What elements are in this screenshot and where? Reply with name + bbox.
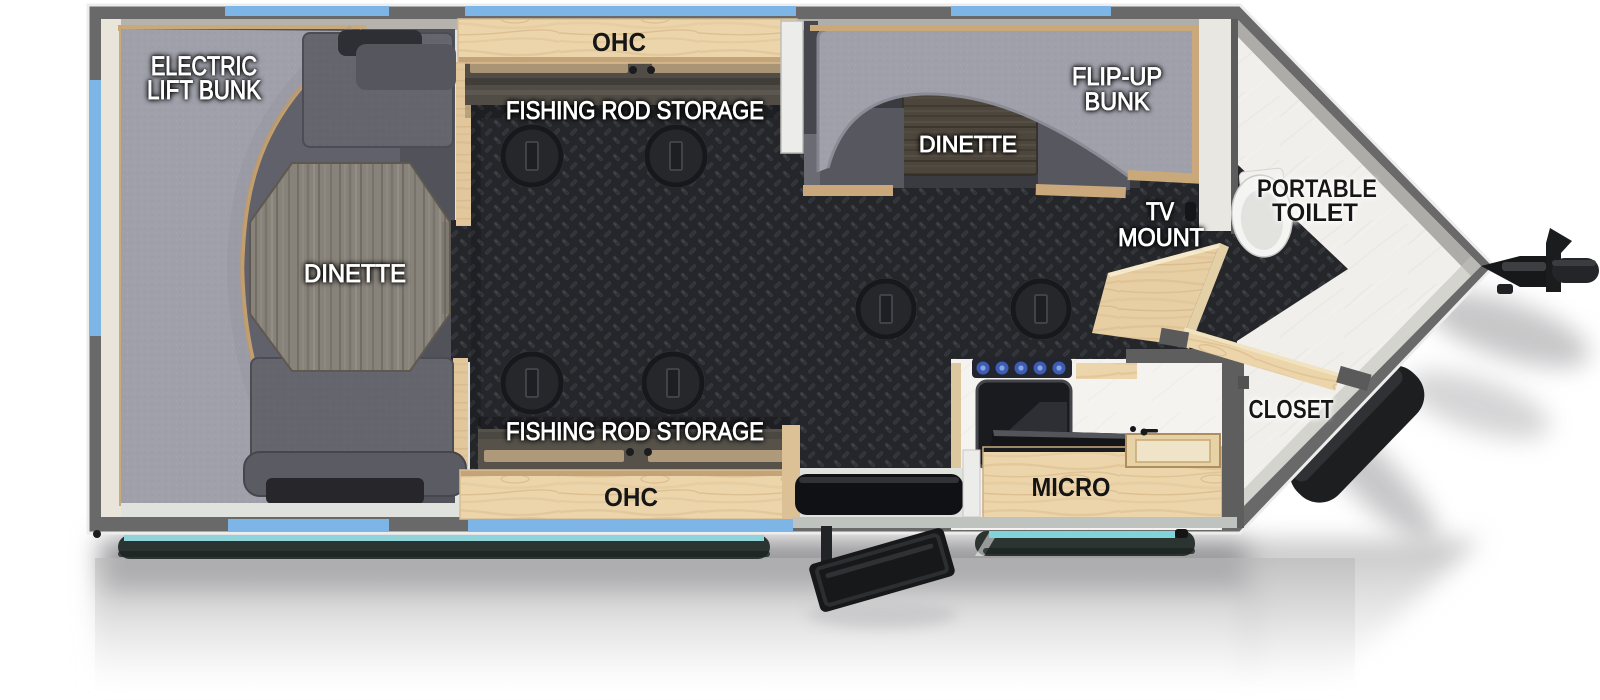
svg-text:FISHING ROD STORAGE: FISHING ROD STORAGE: [506, 418, 764, 446]
svg-text:LIFT BUNK: LIFT BUNK: [147, 75, 261, 105]
svg-text:DINETTE: DINETTE: [304, 260, 406, 288]
svg-text:BUNK: BUNK: [1085, 88, 1150, 116]
svg-text:FLIP-UP: FLIP-UP: [1072, 63, 1162, 91]
svg-text:DINETTE: DINETTE: [919, 131, 1017, 157]
svg-text:TV: TV: [1146, 198, 1174, 226]
svg-text:OHC: OHC: [592, 27, 646, 57]
svg-text:OHC: OHC: [604, 482, 658, 512]
svg-text:CLOSET: CLOSET: [1249, 394, 1334, 424]
svg-text:FISHING ROD STORAGE: FISHING ROD STORAGE: [506, 97, 764, 125]
svg-text:TOILET: TOILET: [1272, 199, 1358, 227]
svg-text:MICRO: MICRO: [1032, 472, 1111, 502]
svg-text:MOUNT: MOUNT: [1118, 224, 1204, 252]
